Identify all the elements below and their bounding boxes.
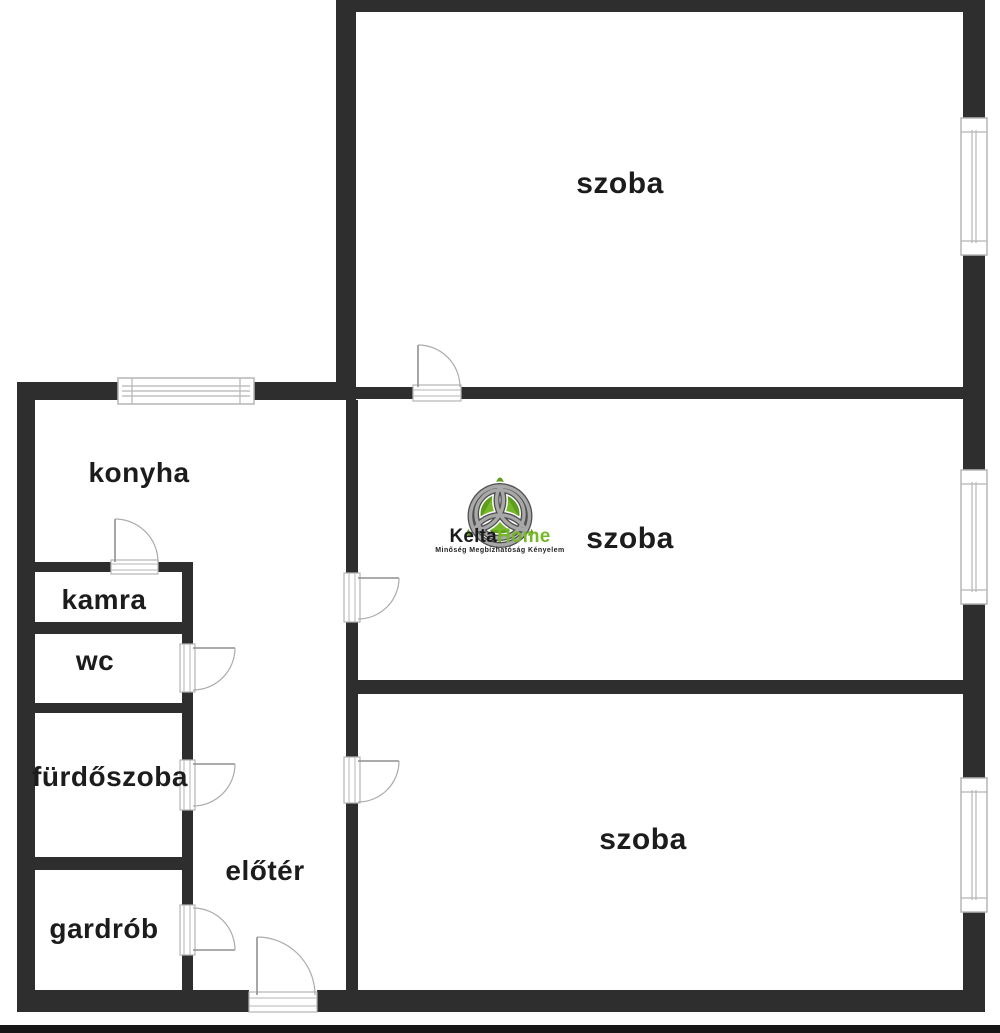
logo-brand-text: KeltaHome <box>430 526 570 548</box>
floor-plan: szoba szoba szoba konyha kamra wc fürdős… <box>0 0 1000 1033</box>
room-label-konyha: konyha <box>88 457 189 489</box>
bottom-edge-bar <box>0 1025 1000 1033</box>
logo-brand-black: Kelta <box>449 526 496 547</box>
logo-tagline: Minőség Megbízhatóság Kényelem <box>410 547 590 554</box>
room-label-kamra: kamra <box>61 584 146 616</box>
door-wc <box>180 644 235 692</box>
keltahome-logo: KeltaHome Minőség Megbízhatóság Kényelem <box>430 472 570 560</box>
window-szoba-bottom <box>961 778 987 912</box>
room-label-gardrob: gardrób <box>49 913 158 945</box>
room-label-eloter: előtér <box>225 855 304 887</box>
room-label-szoba-top: szoba <box>576 167 664 201</box>
door-szoba-top <box>413 345 461 401</box>
room-label-furdoszoba: fürdőszoba <box>32 761 188 793</box>
door-furdoszoba <box>180 760 235 810</box>
logo-brand-green: Home <box>497 526 551 547</box>
door-szoba-middle <box>344 573 399 622</box>
door-szoba-bottom <box>344 757 399 803</box>
room-label-wc: wc <box>76 645 114 677</box>
room-label-szoba-bottom: szoba <box>599 823 687 857</box>
room-label-szoba-middle: szoba <box>586 522 674 556</box>
door-kamra <box>111 519 158 574</box>
window-szoba-top <box>961 118 987 255</box>
door-gardrob <box>180 905 235 955</box>
door-entrance <box>249 937 317 1012</box>
window-konyha <box>118 378 254 404</box>
window-szoba-middle <box>961 470 987 604</box>
